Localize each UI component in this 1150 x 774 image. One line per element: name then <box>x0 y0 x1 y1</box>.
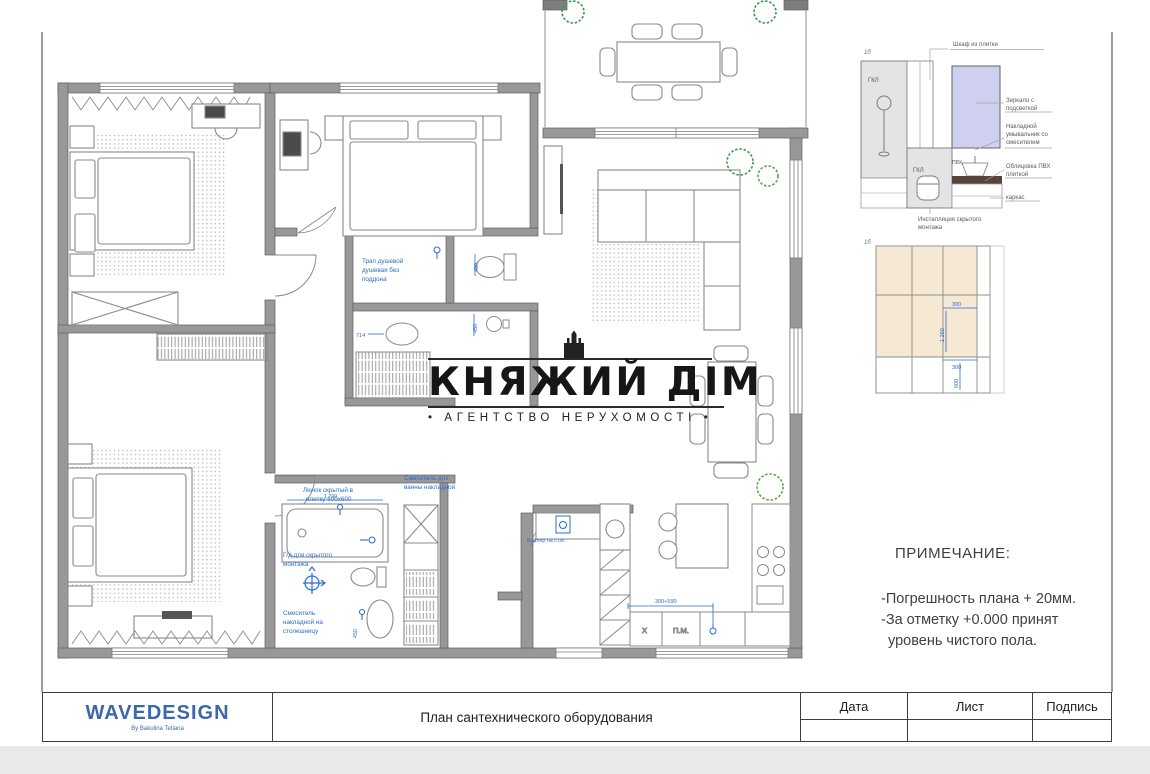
island-table <box>659 504 728 568</box>
window <box>656 648 788 658</box>
svg-text:714: 714 <box>356 333 365 339</box>
window <box>790 328 802 414</box>
title-block: WAVEDESIGN By Bakulina Tetiana План сант… <box>42 692 1112 742</box>
signature-header: Подпись <box>1033 693 1111 720</box>
dishwasher-label: П.М. <box>673 626 689 635</box>
window <box>790 160 802 258</box>
terrace <box>600 24 737 100</box>
pullout-cabinet <box>600 545 630 645</box>
chair <box>672 85 702 100</box>
chair <box>758 414 773 444</box>
note-line: -Погрешность плана + 20мм. <box>881 589 1126 610</box>
nightstand <box>70 126 94 148</box>
hob-burner <box>758 565 769 576</box>
bed <box>68 468 192 582</box>
chair <box>632 24 662 39</box>
chair <box>714 463 748 478</box>
svg-text:600: 600 <box>954 379 960 388</box>
note-line: уровень чистого пола. <box>888 631 1126 652</box>
countertop-sink <box>367 600 393 638</box>
plant-icon <box>757 474 783 500</box>
sheet-column: Лист <box>908 693 1033 741</box>
cabinet <box>600 504 630 550</box>
svg-text:Смеситель для: Смеситель для <box>404 475 449 482</box>
svg-text:Накладной: Накладной <box>1006 123 1037 130</box>
svg-text:монтажа: монтажа <box>918 225 943 231</box>
note-line: -За отметку +0.000 принят <box>881 610 1126 631</box>
wardrobe <box>157 334 267 360</box>
sliding-door <box>595 128 759 138</box>
pvh-label: ПВХ <box>952 160 963 166</box>
detail-ref: 1б <box>864 240 871 246</box>
bedroom-top-left <box>70 97 260 325</box>
svg-text:поддона: поддона <box>362 276 387 283</box>
svg-text:каркас: каркас <box>1006 195 1025 201</box>
nightstand <box>70 254 94 276</box>
svg-text:Г/д для скрытого: Г/д для скрытого <box>283 552 332 559</box>
toilet <box>476 254 516 280</box>
bedroom-top-middle <box>280 116 501 236</box>
chair <box>632 85 662 100</box>
chair <box>672 24 702 39</box>
terrace-table <box>617 42 720 82</box>
svg-text:монтажа: монтажа <box>283 561 309 568</box>
brand-logo: WAVEDESIGN <box>85 702 229 725</box>
bed <box>343 116 483 236</box>
hob-burner <box>774 565 785 576</box>
svg-text:подсветкой: подсветкой <box>1006 105 1037 112</box>
svg-text:ванны накладной: ванны накладной <box>404 483 456 491</box>
watermark-rule <box>428 406 724 408</box>
nightstand <box>68 586 92 606</box>
mirror <box>952 66 1000 148</box>
page-margin <box>0 746 1150 774</box>
svg-text:Инсталляция скрытого: Инсталляция скрытого <box>918 217 982 223</box>
svg-text:накладной на: накладной на <box>283 618 323 626</box>
floor-plan: Х П.М. <box>58 0 808 658</box>
svg-text:300: 300 <box>952 302 961 308</box>
countertop <box>952 176 1002 184</box>
hygienic-shower-icon <box>303 567 325 594</box>
chair <box>659 513 677 531</box>
detail-elevation: 1б ГКЛ ГКЛ ПВХ <box>861 42 1052 231</box>
kitchen-counter-right <box>752 504 790 612</box>
closet <box>72 292 178 325</box>
drawing-title: План сантехнического оборудования <box>273 693 801 741</box>
svg-text:Бойлер на ст.м.: Бойлер на ст.м. <box>527 537 565 544</box>
svg-text:Смеситель: Смеситель <box>283 610 316 617</box>
svg-text:450: 450 <box>353 629 359 638</box>
chair <box>659 541 677 559</box>
plant-icon <box>758 166 778 186</box>
date-header: Дата <box>801 693 907 720</box>
svg-text:300: 300 <box>952 365 961 371</box>
plant-icon <box>754 1 776 23</box>
gkl-label: ГКЛ <box>913 168 924 174</box>
hob-burner <box>758 547 769 558</box>
svg-text:Облицовка ПВХ: Облицовка ПВХ <box>1006 164 1050 170</box>
door <box>298 207 336 233</box>
detail-ref: 1б <box>864 50 871 56</box>
detail-tiles: 1б 300 1 250 300 600 <box>864 240 1004 393</box>
kitchen-base-row <box>630 612 790 646</box>
svg-text:Лючок скрытый в: Лючок скрытый в <box>303 486 354 494</box>
fridge-label: Х <box>642 626 647 635</box>
watermark-title: КНЯЖИЙ ДІМ <box>428 360 746 406</box>
notes: ПРИМЕЧАНИЕ: -Погрешность плана + 20мм. -… <box>881 545 1126 652</box>
window <box>112 648 228 658</box>
faucet-icon <box>360 610 365 621</box>
nightstand <box>483 116 501 140</box>
watermark-subtitle: • АГЕНТСТВО НЕРУХОМОСТІ • <box>428 412 746 424</box>
svg-text:столешницу: столешницу <box>283 628 319 635</box>
svg-text:Шкаф из плитки: Шкаф из плитки <box>953 42 998 48</box>
svg-text:300+590: 300+590 <box>655 599 677 605</box>
svg-text:плиткой: плиткой <box>1006 171 1028 178</box>
tall-cabinet <box>404 505 438 645</box>
svg-text:душевая без: душевая без <box>362 266 399 274</box>
svg-text:смесителем: смесителем <box>1006 140 1040 146</box>
shower-head-icon <box>434 247 440 259</box>
nightstand <box>68 444 92 464</box>
brand-cell: WAVEDESIGN By Bakulina Tetiana <box>43 693 273 741</box>
hob-burner <box>774 547 785 558</box>
toilet <box>351 567 386 587</box>
svg-text:Трап душевой: Трап душевой <box>362 257 404 265</box>
svg-text:1 250: 1 250 <box>940 328 946 342</box>
window <box>556 648 602 658</box>
nightstand <box>325 116 343 140</box>
chair <box>600 48 615 76</box>
desk <box>280 120 321 170</box>
brand-subtitle: By Bakulina Tetiana <box>131 726 184 732</box>
bathtub-oval <box>386 323 418 345</box>
svg-text:1 700: 1 700 <box>324 494 337 500</box>
storage-hatch <box>356 352 430 398</box>
tv-console <box>544 146 563 234</box>
chair <box>722 48 737 76</box>
date-column: Дата <box>801 693 908 741</box>
notes-heading: ПРИМЕЧАНИЕ: <box>895 545 1126 562</box>
watermark: КНЯЖИЙ ДІМ • АГЕНТСТВО НЕРУХОМОСТІ • <box>428 330 746 424</box>
sheet-header: Лист <box>908 693 1032 720</box>
sink-front <box>962 163 988 176</box>
svg-text:Зеркало с: Зеркало с <box>1006 98 1034 104</box>
signature-column: Подпись <box>1033 693 1111 741</box>
gkl-label: ГКЛ <box>868 78 879 84</box>
window <box>100 83 234 93</box>
wall-hung-toilet-icon <box>917 176 939 200</box>
window <box>340 83 498 93</box>
building-icon <box>560 330 590 358</box>
drawing-sheet: Х П.М. <box>0 0 1150 774</box>
svg-text:умывальник со: умывальник со <box>1006 132 1048 138</box>
bed <box>70 152 194 252</box>
door <box>275 255 316 296</box>
